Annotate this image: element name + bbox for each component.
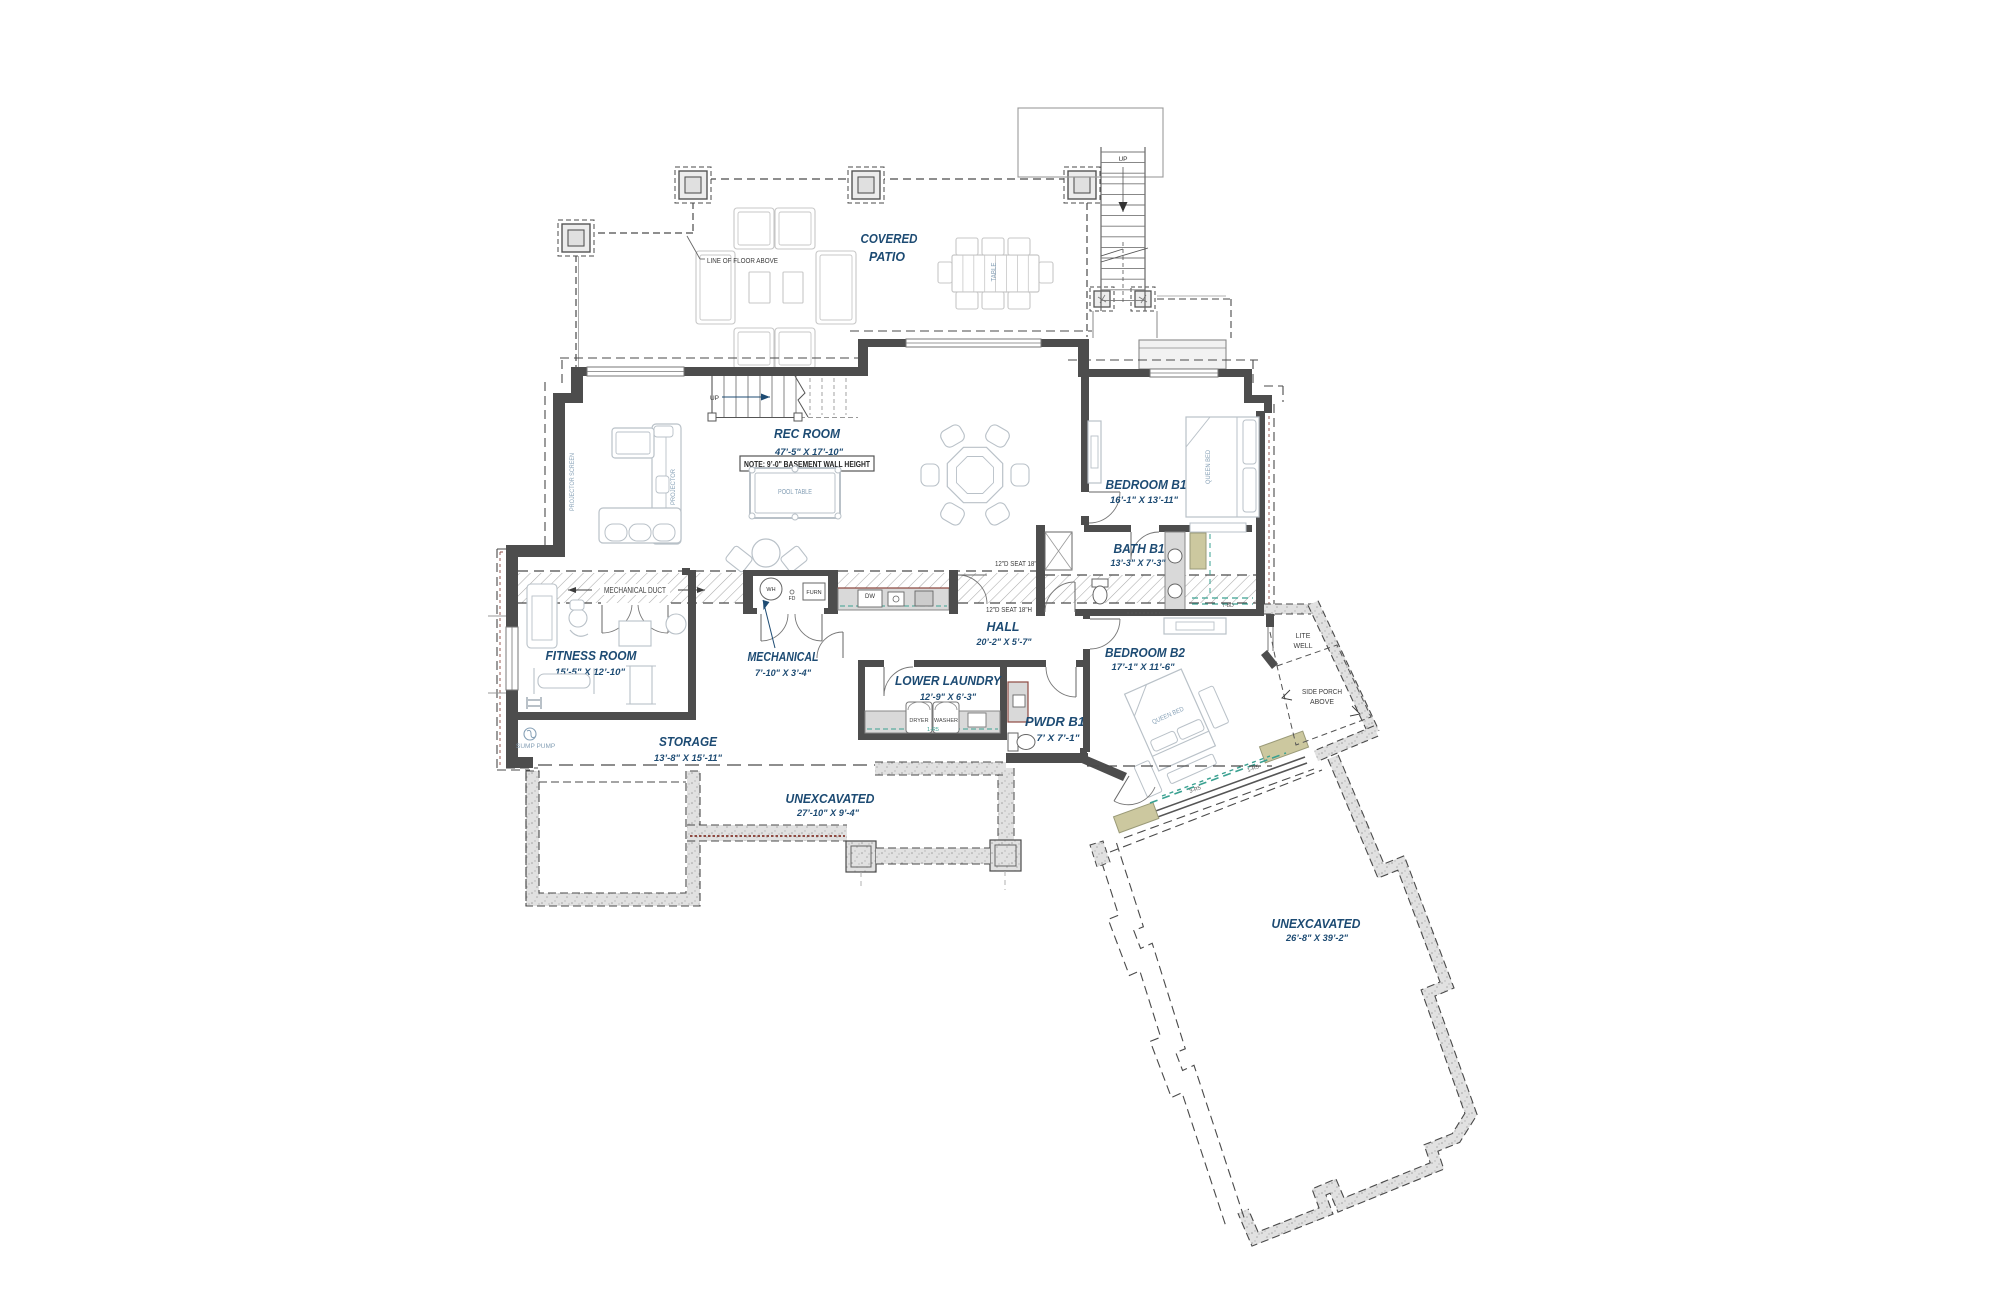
svg-text:DRYER: DRYER — [909, 718, 928, 724]
svg-text:LINE OF FLOOR ABOVE: LINE OF FLOOR ABOVE — [707, 258, 778, 265]
svg-text:FITNESS ROOM: FITNESS ROOM — [546, 648, 638, 663]
svg-text:WH: WH — [766, 587, 775, 593]
svg-text:1-R5: 1-R5 — [927, 727, 939, 733]
svg-text:ABOVE: ABOVE — [1310, 699, 1334, 706]
svg-text:13’-8" X 15’-11": 13’-8" X 15’-11" — [654, 753, 722, 764]
svg-text:UP: UP — [710, 395, 719, 402]
svg-text:QUEEN BED: QUEEN BED — [1205, 450, 1212, 484]
svg-text:PATIO: PATIO — [869, 249, 905, 264]
svg-text:STORAGE: STORAGE — [659, 734, 717, 749]
svg-text:LOWER LAUNDRY: LOWER LAUNDRY — [895, 673, 1002, 688]
svg-text:HALL: HALL — [987, 619, 1020, 634]
svg-text:SIDE PORCH: SIDE PORCH — [1302, 689, 1342, 696]
svg-text:UNEXCAVATED: UNEXCAVATED — [786, 791, 876, 806]
svg-text:LITE: LITE — [1296, 633, 1311, 640]
svg-text:20’-2" X 5’-7": 20’-2" X 5’-7" — [976, 637, 1032, 648]
svg-text:FURN: FURN — [806, 590, 821, 596]
svg-text:FD: FD — [789, 596, 796, 602]
svg-text:13’-3" X 7’-3": 13’-3" X 7’-3" — [1111, 558, 1166, 569]
svg-text:16’-1" X 13’-11": 16’-1" X 13’-11" — [1110, 495, 1178, 506]
svg-text:SUMP PUMP: SUMP PUMP — [516, 743, 555, 750]
svg-text:12"D SEAT 18"H: 12"D SEAT 18"H — [986, 607, 1032, 614]
svg-text:7’ X 7’-1": 7’ X 7’-1" — [1037, 733, 1081, 744]
svg-text:7’-10" X 3’-4": 7’-10" X 3’-4" — [755, 668, 811, 679]
svg-text:UP: UP — [1118, 156, 1127, 163]
svg-text:UNEXCAVATED: UNEXCAVATED — [1272, 916, 1362, 931]
svg-text:PROJECTOR: PROJECTOR — [670, 469, 677, 505]
svg-text:COVERED: COVERED — [861, 231, 919, 246]
svg-text:MECHANICAL: MECHANICAL — [748, 649, 819, 664]
svg-text:T-BD: T-BD — [1222, 603, 1234, 609]
svg-text:PWDR B1: PWDR B1 — [1025, 714, 1085, 729]
svg-text:POOL TABLE: POOL TABLE — [778, 489, 812, 496]
svg-text:DW: DW — [865, 594, 875, 600]
svg-text:PROJECTOR SCREEN: PROJECTOR SCREEN — [569, 453, 576, 511]
svg-text:BEDROOM B2: BEDROOM B2 — [1105, 645, 1186, 660]
svg-text:17’-1" X 11’-6": 17’-1" X 11’-6" — [1112, 662, 1175, 673]
svg-text:BEDROOM B1: BEDROOM B1 — [1106, 477, 1187, 492]
svg-text:27’-10" X 9’-4": 27’-10" X 9’-4" — [796, 808, 859, 819]
svg-text:WASHER: WASHER — [934, 718, 958, 724]
svg-text:TABLE: TABLE — [991, 262, 998, 281]
svg-text:12’-9" X 6’-3": 12’-9" X 6’-3" — [920, 692, 976, 703]
svg-text:BATH B1: BATH B1 — [1114, 541, 1165, 556]
svg-text:REC ROOM: REC ROOM — [774, 426, 841, 441]
svg-text:WELL: WELL — [1293, 643, 1312, 650]
svg-text:MECHANICAL DUCT: MECHANICAL DUCT — [604, 586, 666, 595]
svg-text:26’-8" X 39’-2": 26’-8" X 39’-2" — [1285, 933, 1348, 944]
svg-text:12"D SEAT 18"H: 12"D SEAT 18"H — [995, 561, 1041, 568]
